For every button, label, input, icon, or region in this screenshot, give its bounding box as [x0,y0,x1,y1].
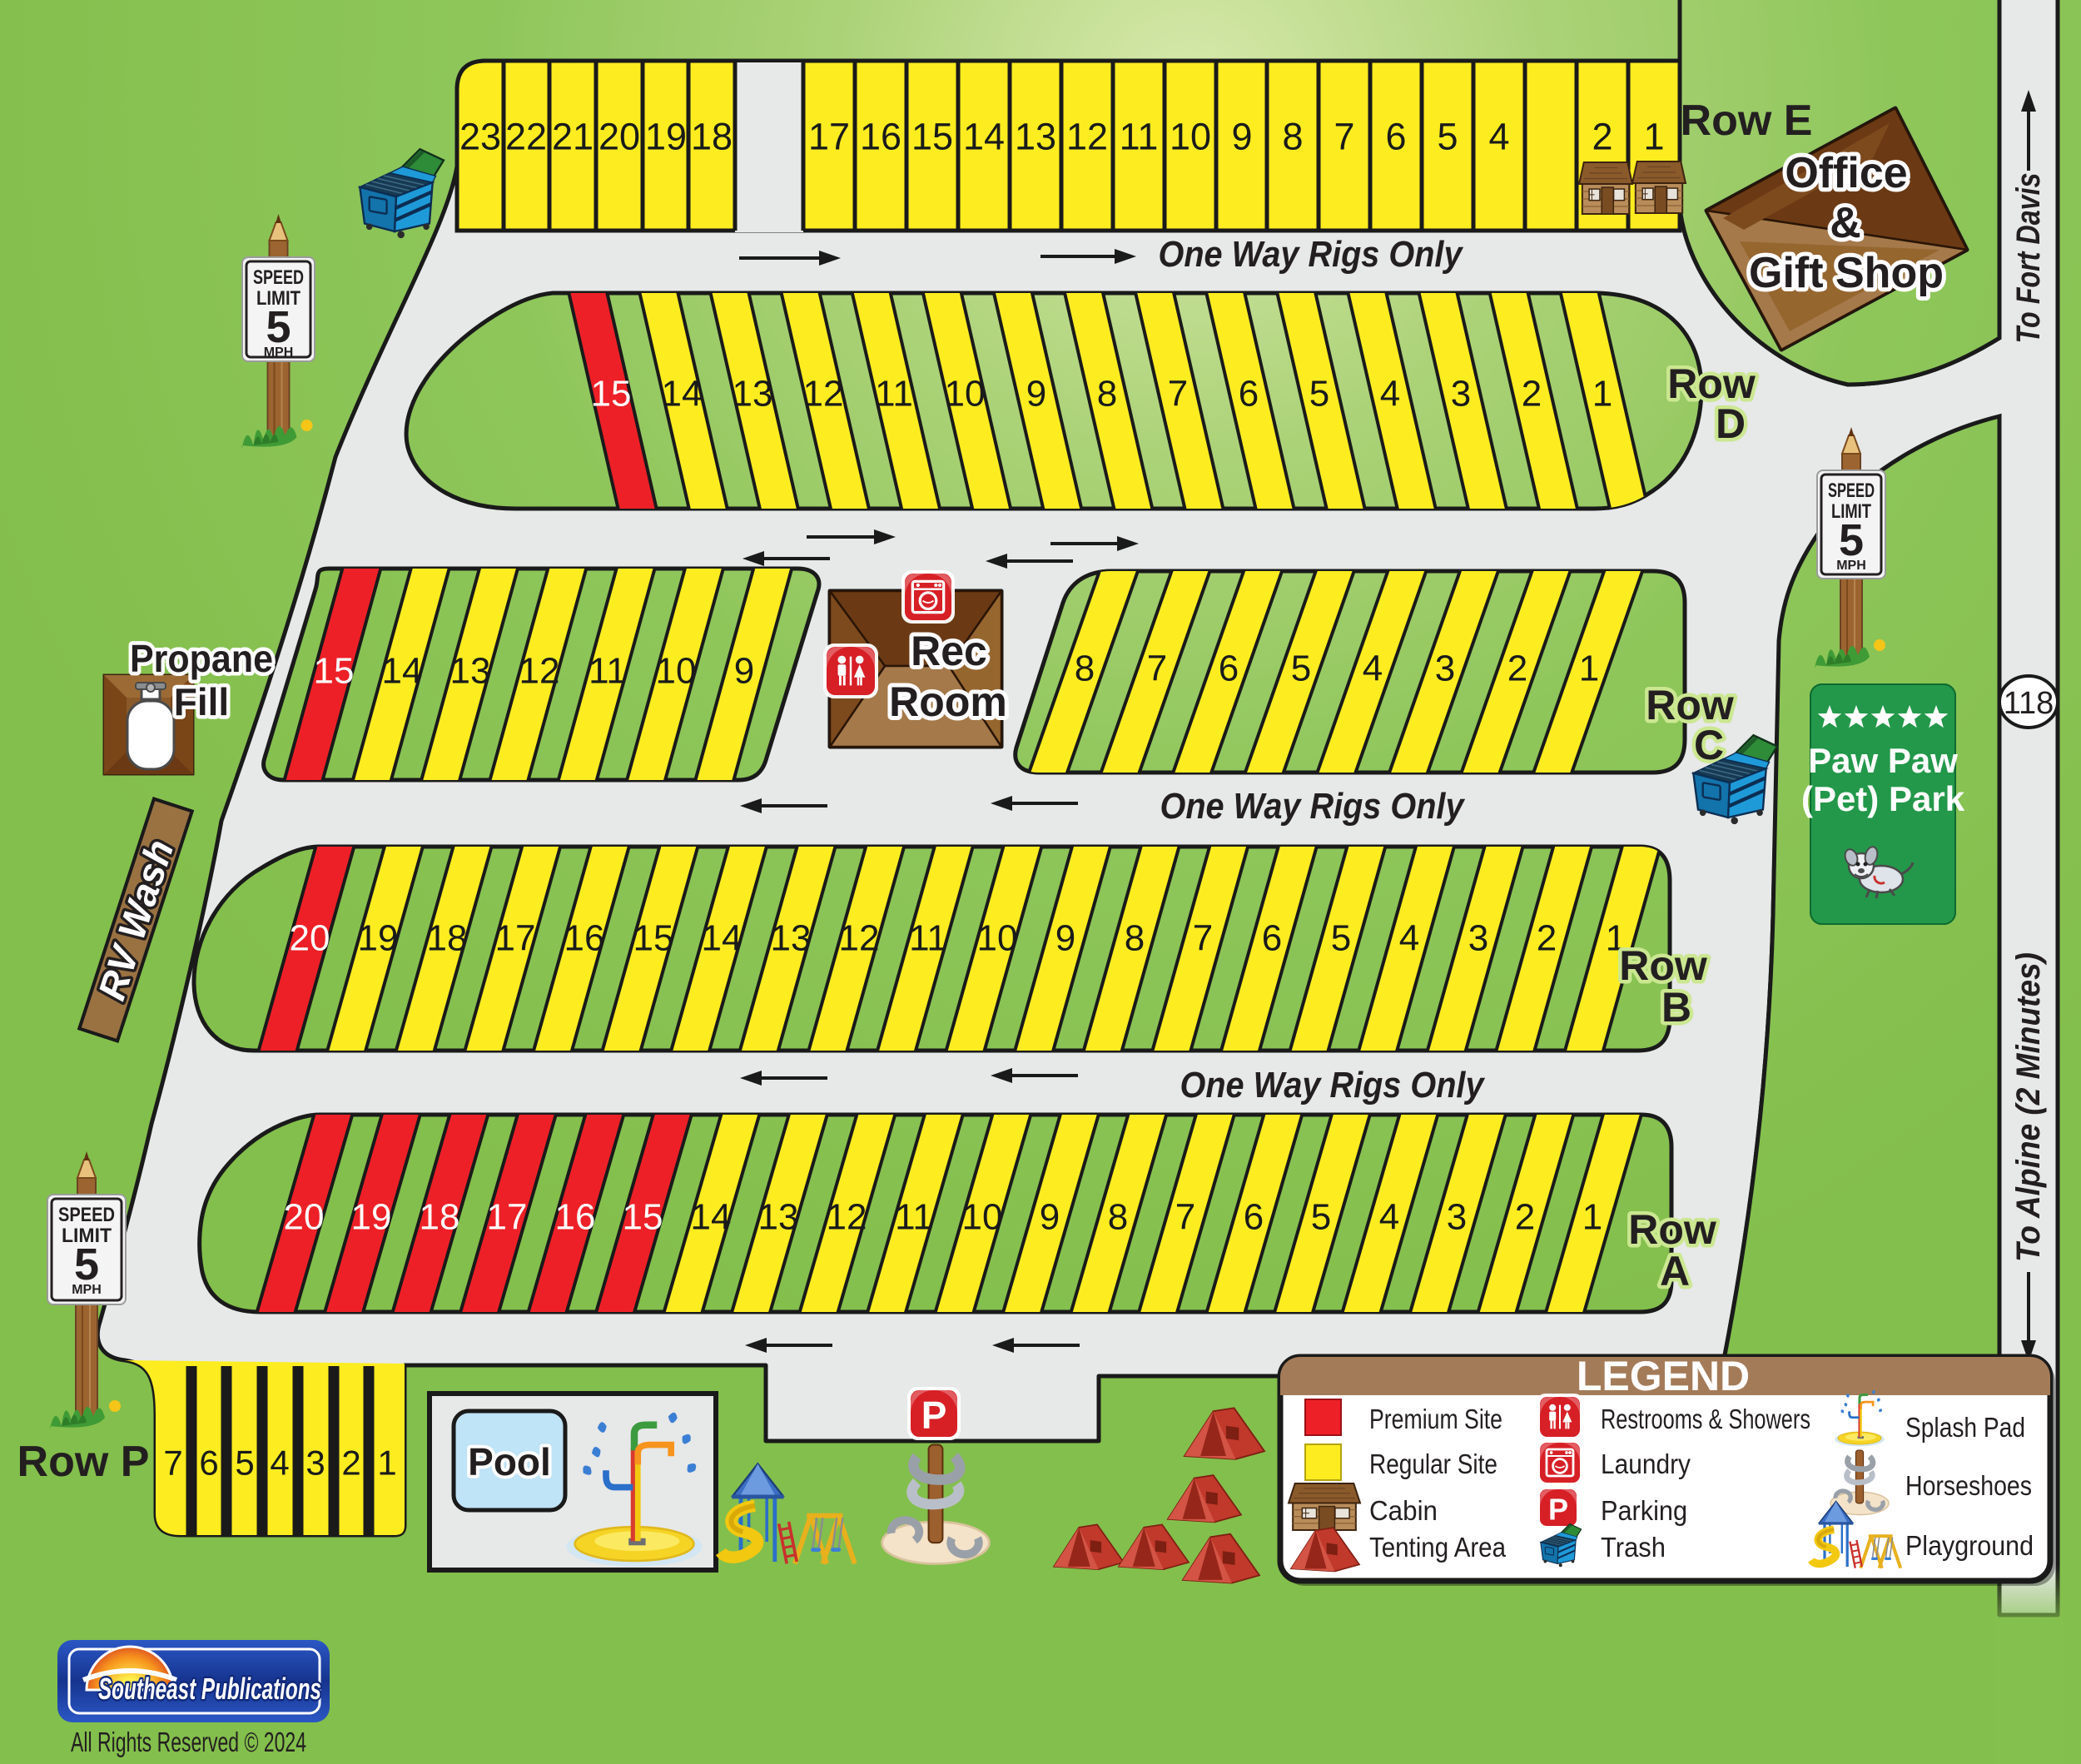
svg-text:11: 11 [589,651,627,692]
svg-text:5: 5 [1331,918,1351,959]
svg-text:15: 15 [314,651,355,692]
svg-text:Tenting Area: Tenting Area [1369,1532,1507,1563]
svg-text:Playground: Playground [1905,1530,2034,1561]
svg-text:12: 12 [839,918,880,959]
svg-text:4: 4 [1363,648,1383,689]
svg-text:13: 13 [758,1197,799,1238]
svg-text:7: 7 [1147,648,1167,689]
svg-text:Room: Room [889,678,1007,725]
svg-text:10: 10 [962,1197,1003,1238]
svg-text:6: 6 [1385,116,1406,158]
svg-text:4: 4 [1379,1197,1399,1238]
svg-text:15: 15 [623,1197,663,1238]
svg-text:2: 2 [1592,116,1612,158]
svg-text:12: 12 [519,651,560,692]
svg-text:1: 1 [1582,1197,1602,1238]
svg-text:5: 5 [1311,1197,1331,1238]
svg-text:Gift Shop: Gift Shop [1749,249,1944,297]
svg-text:5: 5 [235,1443,254,1483]
svg-text:5: 5 [1839,515,1864,565]
svg-text:16: 16 [860,116,901,158]
svg-text:One Way Rigs Only: One Way Rigs Only [1180,1065,1486,1106]
svg-text:SPEED: SPEED [1828,480,1875,502]
svg-text:13: 13 [1015,116,1056,158]
svg-text:3: 3 [1435,648,1455,689]
svg-text:8: 8 [1282,116,1303,158]
svg-text:11: 11 [1120,116,1159,158]
svg-text:11: 11 [909,918,947,959]
svg-text:19: 19 [351,1197,392,1238]
svg-text:3: 3 [1468,918,1488,959]
svg-text:15: 15 [911,116,953,158]
svg-text:3: 3 [1447,1197,1467,1238]
svg-text:6: 6 [1219,648,1239,689]
svg-text:14: 14 [662,374,703,415]
svg-text:7: 7 [1168,374,1188,415]
svg-text:Row P: Row P [17,1438,150,1486]
svg-text:20: 20 [598,116,640,158]
svg-text:7: 7 [1193,918,1213,959]
svg-text:10: 10 [945,374,986,415]
svg-text:15: 15 [633,918,674,959]
svg-text:17: 17 [495,918,536,959]
svg-text:1: 1 [1592,374,1612,415]
svg-text:11: 11 [875,374,913,415]
svg-text:118: 118 [2004,686,2054,721]
svg-text:8: 8 [1108,1197,1128,1238]
svg-text:Splash Pad: Splash Pad [1905,1412,2025,1443]
svg-text:SPEED: SPEED [253,266,304,289]
svg-text:7: 7 [1334,116,1354,158]
svg-text:One Way Rigs Only: One Way Rigs Only [1159,234,1464,275]
svg-text:16: 16 [555,1197,596,1238]
svg-text:Trash: Trash [1601,1532,1666,1563]
svg-text:Propane: Propane [130,637,273,680]
svg-text:14: 14 [382,651,423,692]
svg-text:10: 10 [977,918,1018,959]
svg-text:One Way Rigs Only: One Way Rigs Only [1160,786,1466,827]
svg-text:18: 18 [420,1197,460,1238]
svg-text:20: 20 [284,1197,325,1238]
svg-text:12: 12 [827,1197,867,1238]
svg-text:9: 9 [1040,1197,1060,1238]
svg-text:P: P [921,1394,947,1437]
svg-text:18: 18 [691,116,733,158]
svg-text:8: 8 [1125,918,1145,959]
svg-text:&: & [1830,199,1861,247]
svg-text:5: 5 [1309,374,1329,415]
svg-text:2: 2 [1515,1197,1535,1238]
svg-text:8: 8 [1097,374,1117,415]
svg-text:19: 19 [645,116,687,158]
svg-text:Office: Office [1785,149,1907,197]
svg-text:6: 6 [1244,1197,1264,1238]
svg-text:3: 3 [1451,374,1471,415]
svg-text:Premium Site: Premium Site [1369,1404,1502,1434]
svg-text:Fill: Fill [174,680,229,723]
svg-text:17: 17 [487,1197,528,1238]
svg-text:5: 5 [74,1240,99,1289]
svg-text:1: 1 [377,1443,396,1483]
svg-text:13: 13 [771,918,812,959]
svg-text:Paw Paw: Paw Paw [1808,741,1958,780]
svg-text:6: 6 [1262,918,1282,959]
svg-text:12: 12 [1066,116,1108,158]
svg-text:2: 2 [1522,374,1542,415]
svg-text:2: 2 [1507,648,1527,689]
svg-text:23: 23 [459,116,501,158]
svg-text:Restrooms & Showers: Restrooms & Showers [1601,1404,1810,1434]
svg-text:1: 1 [1579,648,1599,689]
svg-text:15: 15 [591,374,632,415]
svg-text:To Fort Davis: To Fort Davis [2010,173,2047,344]
svg-text:Laundry: Laundry [1601,1448,1691,1479]
svg-text:6: 6 [1239,374,1259,415]
svg-text:Pool: Pool [468,1440,551,1483]
svg-text:(Pet) Park: (Pet) Park [1801,779,1965,818]
svg-text:21: 21 [552,116,594,158]
svg-text:14: 14 [691,1197,732,1238]
svg-text:D: D [1716,400,1746,447]
svg-text:2: 2 [341,1443,360,1483]
svg-text:14: 14 [702,918,743,959]
svg-text:11: 11 [895,1197,933,1238]
svg-text:6: 6 [199,1443,218,1483]
svg-text:5: 5 [1437,116,1458,158]
svg-text:13: 13 [450,651,491,692]
svg-text:Row: Row [1628,1206,1716,1253]
svg-text:Parking: Parking [1601,1495,1687,1526]
svg-text:5: 5 [1291,648,1311,689]
svg-text:B: B [1661,984,1691,1031]
svg-text:3: 3 [305,1443,325,1483]
svg-text:7: 7 [163,1443,182,1483]
svg-text:LEGEND: LEGEND [1577,1353,1750,1399]
svg-text:16: 16 [564,918,605,959]
svg-text:9: 9 [1055,918,1075,959]
svg-text:Regular Site: Regular Site [1369,1448,1497,1479]
svg-text:1: 1 [1643,116,1664,158]
svg-text:17: 17 [808,116,850,158]
svg-text:9: 9 [1231,116,1252,158]
svg-text:12: 12 [803,374,844,415]
svg-text:9: 9 [734,651,754,692]
svg-text:Row E: Row E [1681,97,1813,145]
svg-text:A: A [1660,1248,1690,1294]
svg-text:8: 8 [1075,648,1095,689]
svg-text:22: 22 [505,116,547,158]
svg-text:4: 4 [270,1443,289,1483]
svg-text:Row: Row [1619,942,1707,989]
svg-text:MPH: MPH [264,345,294,360]
svg-text:SPEED: SPEED [58,1204,115,1226]
svg-text:10: 10 [656,651,697,692]
svg-text:18: 18 [427,918,468,959]
svg-text:19: 19 [358,918,399,959]
svg-text:To Alpine (2 Minutes): To Alpine (2 Minutes) [2010,952,2047,1262]
svg-text:Horseshoes: Horseshoes [1905,1470,2032,1501]
svg-text:14: 14 [963,116,1005,158]
svg-text:2: 2 [1537,918,1557,959]
svg-text:P: P [1548,1493,1568,1527]
svg-text:5: 5 [266,302,291,352]
svg-text:4: 4 [1399,918,1419,959]
svg-text:4: 4 [1380,374,1400,415]
svg-text:13: 13 [733,374,773,415]
svg-text:Southeast Publications: Southeast Publications [98,1672,321,1706]
svg-text:20: 20 [290,918,330,959]
svg-text:Cabin: Cabin [1369,1495,1438,1526]
svg-text:MPH: MPH [72,1283,102,1297]
svg-text:All Rights Reserved © 2024: All Rights Reserved © 2024 [71,1727,306,1757]
svg-text:9: 9 [1026,374,1046,415]
svg-text:7: 7 [1175,1197,1195,1238]
svg-text:Rec: Rec [911,628,987,674]
svg-text:10: 10 [1170,116,1211,158]
svg-text:MPH: MPH [1836,559,1866,573]
svg-text:4: 4 [1488,116,1509,158]
